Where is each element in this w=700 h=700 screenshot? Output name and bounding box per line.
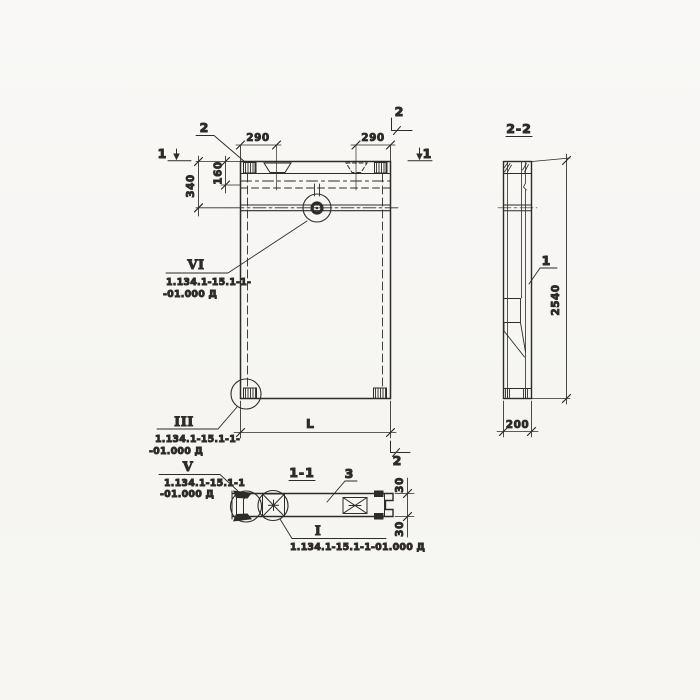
detail-vi-ref-1: 1.134.1-15.1-1- — [166, 277, 251, 288]
elevation-view — [231, 145, 399, 409]
detail-iii-leader — [157, 407, 237, 429]
section-1-1-body — [233, 494, 393, 517]
part-1-leader — [529, 268, 557, 284]
drawing-page: 290 290 340 160 L 1 1 2 2 2 — [0, 0, 700, 700]
s22-inner-right — [522, 162, 527, 398]
hidden-edges — [248, 174, 383, 388]
technical-drawing: 290 290 340 160 L 1 1 2 2 2 — [0, 0, 700, 700]
anchor-block-bottom-right — [374, 388, 387, 399]
part-3-leader — [327, 481, 357, 502]
embed-plate-right — [343, 498, 367, 514]
section-mark-1-left-label: 1 — [158, 146, 167, 161]
dim-290-lines — [236, 145, 395, 162]
dim-L-lines — [234, 401, 396, 438]
dim-290-left-label: 290 — [246, 132, 269, 144]
callout-2-label: 2 — [200, 120, 209, 135]
detail-i-numeral: I — [315, 524, 322, 539]
dim-290-right-label: 290 — [361, 132, 384, 144]
callout-2-leader — [196, 136, 245, 163]
embed-plate-left — [263, 494, 285, 517]
section-mark-1-right-label: 1 — [423, 146, 432, 161]
part-1-label: 1 — [542, 253, 551, 268]
end-anchor-bottom — [374, 513, 384, 520]
anchor-block-top-left — [244, 163, 257, 174]
dim-200-label: 200 — [506, 419, 529, 431]
anchor-block-bottom-left — [244, 388, 257, 399]
dim-30-top-label: 30 — [394, 477, 406, 493]
detail-v-numeral: V — [182, 460, 194, 475]
section-2-2-view: 2-2 1 2540 200 — [497, 121, 571, 437]
detail-v-ref-1: 1.134.1-15.1-1 — [164, 478, 245, 489]
dim-2540-label: 2540 — [550, 284, 562, 315]
detail-vi-ref-2: -01.000 Д — [163, 289, 217, 300]
dim-200-group: 200 — [497, 401, 538, 437]
recess-right — [346, 163, 367, 173]
dim-ticks — [195, 141, 395, 437]
detail-iii-ref-1: 1.134.1-15.1-1- — [155, 434, 240, 445]
section-mark-2-top-label: 2 — [395, 104, 404, 119]
part-3-label: 3 — [345, 466, 354, 481]
dim-340-label: 340 — [185, 174, 197, 197]
end-anchor-top — [374, 491, 384, 498]
detail-i-ref: 1.134.1-15.1-1-01.000 Д — [290, 542, 425, 553]
panel-outline — [241, 162, 391, 399]
dim-2540-group: 2540 — [532, 154, 571, 404]
detail-iii-numeral: III — [174, 415, 194, 430]
dim-160-label: 160 — [213, 161, 225, 184]
dim-30-group: 30 30 — [394, 477, 414, 537]
dim-30-bottom-label: 30 — [394, 521, 406, 537]
section-mark-2-bottom-label: 2 — [393, 453, 402, 468]
detail-vi-circle — [303, 184, 331, 222]
s22-bottom-hatch — [506, 390, 528, 398]
detail-vi-numeral: VI — [186, 258, 204, 273]
detail-v-ref-2: -01.000 Д — [160, 489, 214, 500]
detail-vi-callout: VI 1.134.1-15.1-1- -01.000 Д — [163, 221, 307, 300]
s22-top-hatch — [505, 163, 529, 172]
section-2-2-title: 2-2 — [506, 121, 532, 136]
anchor-block-top-right — [375, 163, 388, 174]
section-1-1-view: 1-1 — [159, 460, 425, 553]
arrow-down-icon — [173, 154, 180, 161]
section-1-1-title: 1-1 — [289, 465, 315, 480]
recess-left — [264, 163, 291, 173]
detail-iii-ref-2: -01.000 Д — [149, 446, 203, 457]
dim-L-label: L — [306, 416, 314, 431]
detail-iii-callout: III 1.134.1-15.1-1- -01.000 Д — [149, 407, 240, 457]
